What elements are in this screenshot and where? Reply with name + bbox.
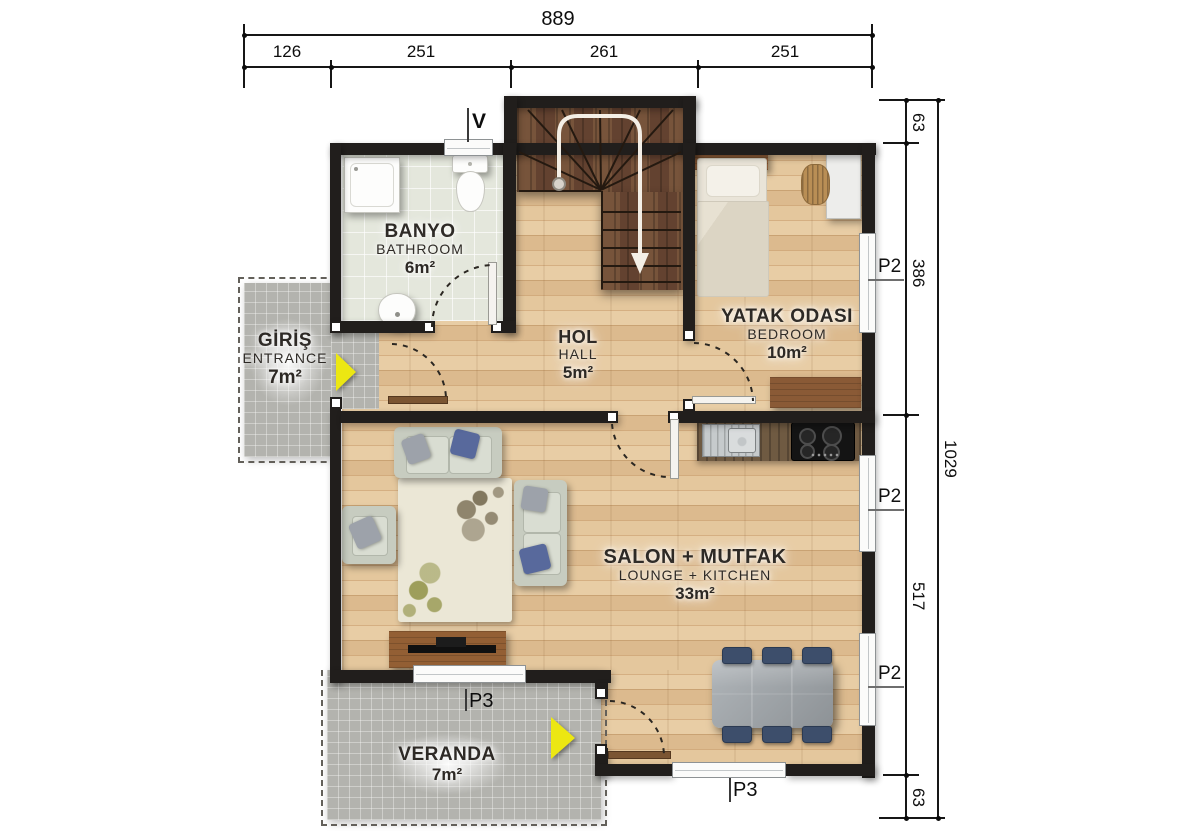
- vent-tag: V: [472, 110, 486, 134]
- wall-bottom-a: [595, 764, 672, 776]
- dim-line: [244, 66, 872, 68]
- tv-stand: [389, 631, 506, 668]
- dim-segment: 251: [745, 42, 825, 62]
- dim-segment: 251: [381, 42, 461, 62]
- dim-dot: [509, 65, 514, 70]
- floor-plan: 889 126 251 261 251 63 386 517 63 1029 P…: [0, 0, 1200, 831]
- room-label-hall: HOL HALL 5m²: [458, 327, 698, 382]
- door-post: [423, 321, 435, 333]
- dining-chair: [722, 726, 752, 743]
- window-tag-p2: P2: [868, 663, 904, 688]
- dim-segment: 261: [564, 42, 644, 62]
- room-name-en: LOUNGE + KITCHEN: [575, 568, 815, 584]
- window-tag-leader: [729, 778, 731, 802]
- dim-total-height: 1029: [940, 423, 960, 495]
- room-name-en: BATHROOM: [300, 242, 540, 258]
- room-name-en: ENTRANCE: [165, 351, 405, 367]
- window-tag-p2: P2: [868, 486, 904, 511]
- hall-lounge-door-leaf: [670, 419, 679, 479]
- wall-bottom-b: [786, 764, 875, 776]
- room-label-bedroom: YATAK ODASI BEDROOM 10m²: [667, 306, 907, 362]
- window-tag-p2: P2: [868, 256, 904, 281]
- window-tag-p3: P3: [469, 690, 493, 713]
- burner: [799, 428, 816, 445]
- kitchen-sink: [702, 424, 760, 457]
- wall-stairwell-top: [504, 96, 696, 108]
- dim-total-width: 889: [458, 8, 658, 31]
- room-area: 6m²: [300, 258, 540, 277]
- room-name: YATAK ODASI: [667, 306, 907, 327]
- stairs-lower-flight: [601, 192, 683, 290]
- dim-dot: [936, 816, 941, 821]
- wall-hall-lounge: [341, 411, 618, 423]
- dining-chair: [802, 726, 832, 743]
- room-area: 5m²: [458, 363, 698, 382]
- dim-line: [244, 34, 872, 36]
- bed-duvet: [697, 201, 769, 297]
- dim-dot: [329, 65, 334, 70]
- area-rug: [398, 478, 512, 622]
- dining-chair: [762, 726, 792, 743]
- room-label-veranda: VERANDA 7m²: [327, 744, 567, 784]
- entrance-door-leaf: [388, 396, 448, 404]
- bedroom-dresser: [770, 377, 861, 408]
- window-tag-p3: P3: [733, 779, 757, 802]
- room-area: 7m²: [165, 367, 405, 388]
- dining-chair: [762, 647, 792, 664]
- dim-segment: 517: [908, 566, 928, 626]
- bed-pillow: [706, 165, 760, 197]
- burner: [822, 426, 842, 446]
- dim-segment: 386: [908, 243, 928, 303]
- wall-top: [330, 143, 876, 155]
- cooktop-knobs: [810, 453, 840, 457]
- dim-dot: [904, 413, 909, 418]
- wall-left-lower: [330, 409, 341, 683]
- sink-basin: [728, 428, 756, 453]
- room-name-en: HALL: [458, 347, 698, 363]
- dim-dot: [242, 65, 247, 70]
- window-p3-bottom: [672, 762, 786, 778]
- room-name-en: BEDROOM: [667, 327, 907, 343]
- room-name: SALON + MUTFAK: [575, 546, 815, 568]
- room-label-lounge-kitchen: SALON + MUTFAK LOUNGE + KITCHEN 33m²: [575, 546, 815, 603]
- room-name: VERANDA: [327, 744, 567, 765]
- cooktop: [791, 422, 855, 461]
- dining-chair: [722, 647, 752, 664]
- room-name: BANYO: [300, 221, 540, 242]
- door-post: [595, 744, 607, 756]
- window-p3-veranda: [413, 665, 526, 683]
- room-name: GİRİŞ: [165, 330, 405, 351]
- dim-dot: [696, 65, 701, 70]
- room-label-entrance: GİRİŞ ENTRANCE 7m²: [165, 330, 405, 388]
- dim-segment: 63: [908, 101, 928, 143]
- basin-drain: [395, 312, 400, 317]
- desk: [826, 152, 861, 219]
- toilet-button: [468, 162, 472, 166]
- dim-line: [905, 100, 907, 818]
- single-bed: [697, 158, 767, 294]
- bedroom-door-leaf: [692, 396, 756, 404]
- dim-dot: [242, 33, 247, 38]
- window-tag-leader: [465, 689, 467, 711]
- tv-base: [436, 637, 466, 647]
- wall-bedroom-lounge: [672, 411, 875, 423]
- room-area: 7m²: [327, 765, 567, 784]
- dim-line: [937, 100, 939, 818]
- room-area: 10m²: [667, 343, 907, 362]
- door-post: [330, 397, 342, 409]
- desk-chair: [801, 164, 830, 205]
- dim-dot: [870, 33, 875, 38]
- dim-dot: [936, 98, 941, 103]
- room-name: HOL: [458, 327, 698, 347]
- room-label-bathroom: BANYO BATHROOM 6m²: [300, 221, 540, 277]
- dining-chair: [802, 647, 832, 664]
- shower-tray: [344, 157, 400, 213]
- dim-segment: 63: [908, 776, 928, 818]
- door-post: [595, 687, 607, 699]
- shower-drain: [354, 167, 358, 171]
- vent-leader: [467, 108, 469, 142]
- dining-table: [712, 660, 833, 728]
- door-post: [606, 411, 618, 423]
- throw-pillow: [520, 485, 548, 513]
- dim-segment: 126: [247, 42, 327, 62]
- veranda-door-leaf: [608, 751, 671, 759]
- room-area: 33m²: [575, 584, 815, 603]
- dim-tick: [883, 414, 919, 416]
- dim-dot: [870, 65, 875, 70]
